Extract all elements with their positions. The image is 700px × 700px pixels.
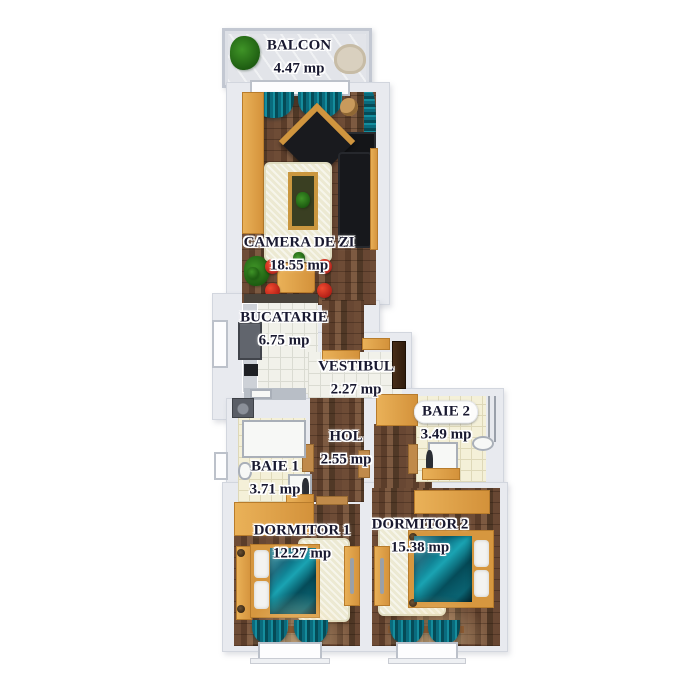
shower bbox=[242, 420, 306, 458]
room-label-dormitor-2: DORMITOR 2 15.38 mp bbox=[372, 514, 469, 559]
corridor-floor bbox=[322, 300, 364, 356]
room-name: DORMITOR 2 bbox=[372, 514, 469, 537]
room-label-balcon: BALCON 4.47 mp bbox=[267, 35, 331, 80]
bedroom1-door-threshold bbox=[316, 496, 348, 505]
room-area: 2.27 mp bbox=[318, 378, 394, 401]
entrance-door bbox=[392, 341, 406, 389]
room-area: 4.47 mp bbox=[267, 57, 331, 80]
room-label-hol: HOL 2.55 mp bbox=[321, 426, 372, 471]
person-figure-icon bbox=[426, 450, 433, 470]
vanity-counter-2 bbox=[422, 468, 460, 480]
stove bbox=[244, 364, 258, 376]
corridor-wall bbox=[362, 300, 380, 336]
room-name: BAIE 2 bbox=[414, 401, 478, 424]
balcony-chair bbox=[334, 44, 366, 74]
room-label-dormitor-1: DORMITOR 1 12.27 mp bbox=[254, 520, 351, 565]
room-area: 2.55 mp bbox=[321, 448, 372, 471]
washing-machine bbox=[232, 398, 254, 418]
bathroom1-window bbox=[214, 452, 228, 480]
room-label-baie-1: BAIE 1 3.71 mp bbox=[250, 456, 301, 501]
room-area: 6.75 mp bbox=[240, 329, 328, 352]
room-label-bucatarie: BUCATARIE 6.75 mp bbox=[240, 307, 328, 352]
basket-icon bbox=[340, 98, 358, 116]
room-area: 15.38 mp bbox=[372, 536, 469, 559]
ventilation-shaft bbox=[488, 396, 500, 442]
room-label-baie-2: BAIE 2 3.49 mp bbox=[414, 401, 478, 446]
room-area: 3.49 mp bbox=[414, 423, 478, 446]
bed2-pillow bbox=[474, 540, 489, 567]
dining-chair bbox=[317, 283, 332, 298]
dresser-handle-icon bbox=[380, 558, 384, 594]
room-name: VESTIBUL bbox=[318, 356, 394, 379]
sofa-back-frame bbox=[370, 148, 378, 250]
bedroom2-wardrobe bbox=[414, 490, 490, 514]
room-label-vestibul: VESTIBUL 2.27 mp bbox=[318, 356, 394, 401]
room-area: 12.27 mp bbox=[254, 542, 351, 565]
room-area: 3.71 mp bbox=[250, 478, 301, 501]
room-label-camera-de-zi: CAMERA DE ZI 18.55 mp bbox=[244, 232, 355, 277]
bed-knob-icon bbox=[237, 549, 245, 557]
room-name: DORMITOR 1 bbox=[254, 520, 351, 543]
room-name: BAIE 1 bbox=[250, 456, 301, 479]
room-name: BALCON bbox=[267, 35, 331, 58]
kitchen-window bbox=[212, 320, 228, 368]
entry-cabinet bbox=[362, 338, 390, 350]
bedroom2-outer-sill bbox=[388, 658, 466, 664]
room-name: CAMERA DE ZI bbox=[244, 232, 355, 255]
bathroom2-door-threshold bbox=[408, 444, 418, 474]
room-name: BUCATARIE bbox=[240, 307, 328, 330]
apartment-floor-plan: BALCON 4.47 mp CAMERA DE ZI 18.55 mp BUC… bbox=[0, 0, 700, 700]
room-name: HOL bbox=[321, 426, 372, 449]
room-area: 18.55 mp bbox=[244, 254, 355, 277]
kitchen-counter-top bbox=[244, 294, 318, 303]
living-wardrobe bbox=[242, 92, 264, 234]
bedroom1-outer-sill bbox=[250, 658, 330, 664]
